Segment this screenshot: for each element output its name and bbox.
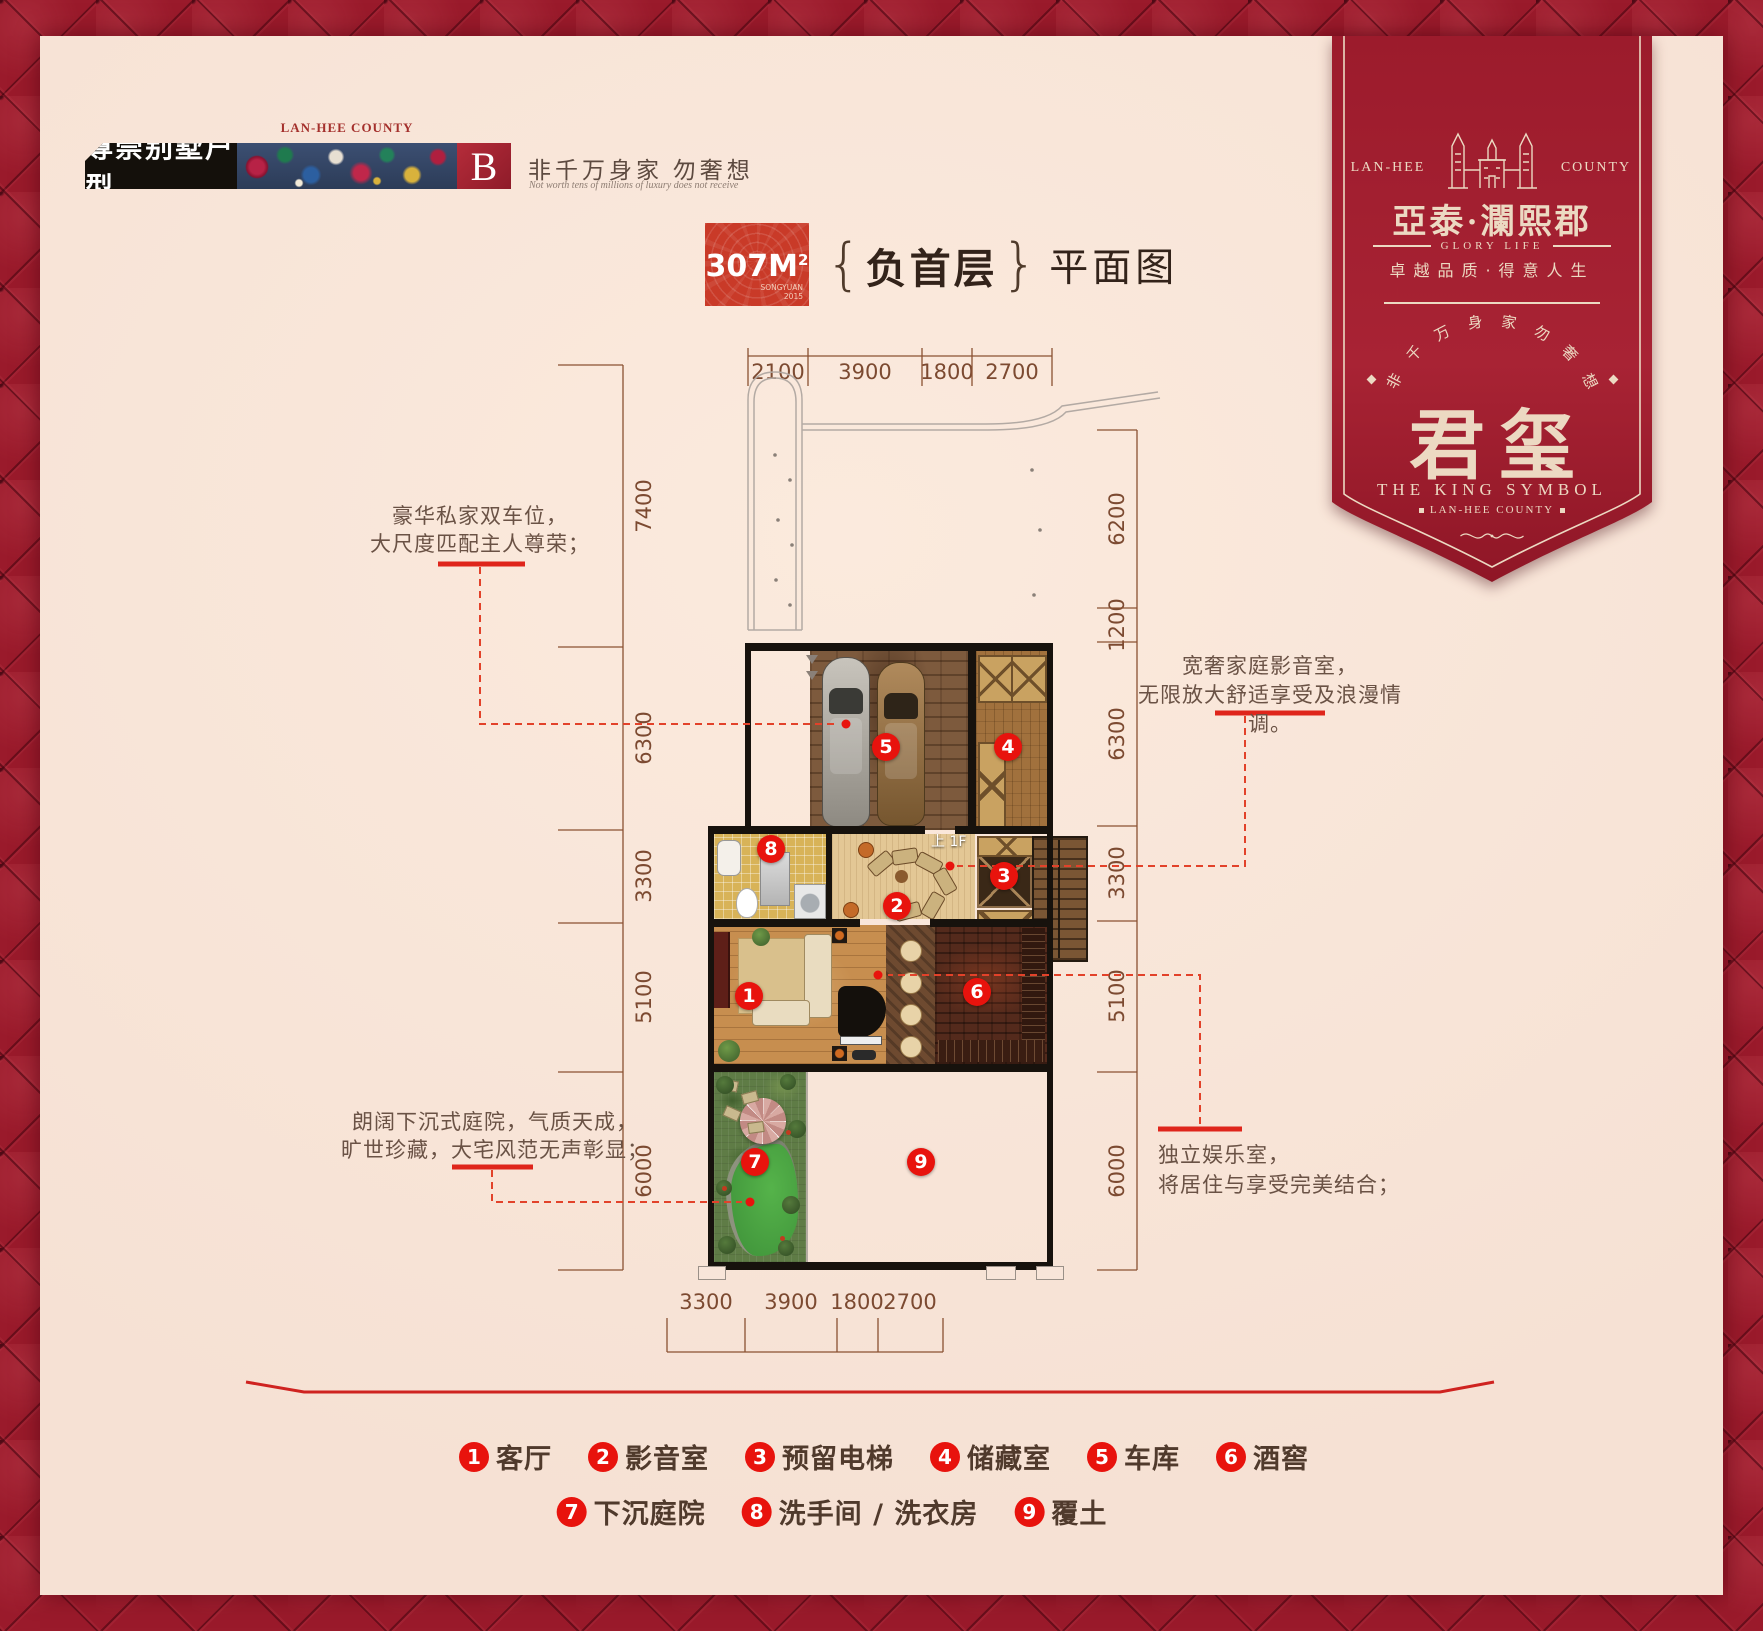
banner-county-sub-label: LAN-HEE COUNTY [1430,504,1554,516]
dim-bottom: 3300 [666,1290,746,1314]
area-badge: 307M2 SONGYUAN 2015 [705,223,809,306]
wall [708,919,860,927]
legend-item: 2 影音室 [588,1437,709,1476]
king-symbol-logotype: 君玺 [1332,384,1652,494]
plant [718,1040,740,1062]
callout-garage: 豪华私家双车位， 大尺度匹配主人尊荣； [360,502,600,558]
room-marker-garage: 5 [872,733,900,761]
legend-label: 储藏室 [967,1437,1051,1476]
king-symbol-en: THE KING SYMBOL [1332,480,1652,500]
callout-line: 将居住与享受完美结合； [1158,1170,1418,1200]
legend-number: 2 [588,1442,618,1472]
callout-media-room: 宽奢家庭影音室， 无限放大舒适享受及浪漫情调。 [1130,652,1410,739]
accent-table [832,928,847,943]
brand-slogan: 卓越品质·得意人生 [1332,257,1652,281]
page-title: { 负首层 } 平面图 [822,233,1178,297]
legend-item: 3 预留电梯 [745,1437,894,1476]
side-table [858,842,874,858]
brace-left: { [822,235,866,295]
glory-life-row: GLORY LIFE [1332,240,1652,252]
wall [930,919,1053,927]
wall [1047,643,1053,1270]
legend-item: 7 下沉庭院 [557,1492,706,1531]
car-roof [830,718,862,774]
callout-courtyard: 朗阔下沉式庭院，气质天成， 旷世珍藏，大宅风范无声彰显； [340,1108,650,1164]
area-value: 307M2 [705,249,809,284]
room-marker-elevator: 3 [990,862,1018,890]
wall [745,643,1053,651]
callout-line: 朗阔下沉式庭院，气质天成， [340,1108,650,1136]
wall [708,826,714,1270]
legend-item: 4 储藏室 [930,1437,1051,1476]
wine-rack [1022,928,1045,1040]
stair-direction-label: 上 1F [931,831,966,851]
legend-label: 下沉庭院 [594,1492,706,1531]
pennant-shape [1332,36,1652,582]
room-marker-media: 2 [883,892,911,920]
dim-right: 6300 [1106,699,1128,769]
sofa [752,1000,810,1026]
brace-right: } [998,235,1042,295]
room-marker-wine: 6 [963,978,991,1006]
ramp-arrow-icon [806,655,818,664]
glory-life-label: GLORY LIFE [1441,240,1544,252]
legend-row-2: 7 下沉庭院 8 洗手间 / 洗衣房 9 覆土 [557,1492,1108,1531]
callout-line: 豪华私家双车位， [360,502,600,530]
legend-item: 6 酒窖 [1216,1437,1309,1476]
legend-number: 9 [1014,1497,1044,1527]
dim-right: 5100 [1106,961,1128,1031]
title-suffix: 平面图 [1049,237,1178,293]
title-floor: 负首层 [866,235,998,295]
wine-rack [938,1040,1045,1062]
callout-line: 旷世珍藏，大宅风范无声彰显； [340,1136,650,1164]
footing [1036,1266,1064,1280]
bush [782,1196,800,1214]
legend-number: 6 [1216,1442,1246,1472]
legend-item: 9 覆土 [1014,1492,1107,1531]
stepping-circle [900,972,922,994]
banner-county-sub: LAN-HEE COUNTY [1332,504,1652,516]
stepping-stone [747,1121,764,1134]
legend-label: 覆土 [1051,1492,1107,1531]
tv-cabinet [714,932,730,1008]
legend-label: 客厅 [496,1437,552,1476]
legend-label: 洗手间 / 洗衣房 [779,1492,979,1531]
side-table [843,902,859,918]
footing [986,1266,1016,1280]
dim-top: 2100 [738,360,818,384]
car-windshield [884,693,918,719]
toilet [736,888,758,918]
type-letter-badge: B [457,143,511,189]
dim-right: 3300 [1106,838,1128,908]
dim-left: 5100 [633,962,655,1032]
brand-name: 亞泰·瀾熙郡 [1332,194,1652,243]
callout-line: 独立娱乐室， [1158,1140,1418,1170]
dim-right: 6000 [1106,1136,1128,1206]
bush [716,1076,734,1094]
storage-cabinet [1011,655,1047,703]
area-badge-subtext: SONGYUAN 2015 [749,283,803,301]
arc-char: 身 [1466,310,1484,333]
legend-item: 1 客厅 [459,1437,552,1476]
county-label: LAN-HEE COUNTY [237,120,457,136]
legend-number: 1 [459,1442,489,1472]
banner-divider [1384,302,1600,304]
wall [968,651,976,830]
banner-county-right: COUNTY [1548,160,1644,176]
room-marker-bathroom: 8 [757,835,785,863]
dim-right: 1200 [1106,590,1128,660]
room-marker-courtyard: 7 [741,1148,769,1176]
room-marker-storage: 4 [994,733,1022,761]
dim-bottom: 2700 [870,1290,950,1314]
dim-top: 2700 [972,360,1052,384]
poster-page: { "header": { "badge": "尊崇别墅户型", "county… [0,0,1763,1631]
callout-line: 无限放大舒适享受及浪漫情调。 [1130,681,1410,739]
flower [780,1236,785,1241]
room-marker-living: 1 [735,982,763,1010]
dim-left: 6300 [633,703,655,773]
plant [752,928,770,946]
legend-item: 5 车库 [1087,1437,1180,1476]
wall [955,826,1053,834]
bush [780,1074,796,1090]
wall [708,1064,1053,1072]
legend-label: 车库 [1124,1437,1180,1476]
stepping-circle [900,1036,922,1058]
washing-machine [794,884,826,919]
rule-left [1373,245,1431,247]
legend-label: 酒窖 [1253,1437,1309,1476]
legend-number: 4 [930,1442,960,1472]
callout-line: 宽奢家庭影音室， [1130,652,1410,681]
stepping-circle [900,940,922,962]
square-icon [1419,508,1424,513]
legend-item: 8 洗手间 / 洗衣房 [742,1492,979,1531]
accent-table [832,1046,847,1061]
stair-rail [1058,840,1060,958]
jewel-band-image [237,143,457,189]
dim-left: 7400 [633,471,655,541]
castle-icon [1442,126,1542,190]
round-table [895,870,908,883]
callout-entertainment: 独立娱乐室， 将居住与享受完美结合； [1158,1140,1418,1200]
legend-number: 7 [557,1497,587,1527]
dim-left: 3300 [633,841,655,911]
flower [786,1130,791,1135]
square-icon [1560,508,1565,513]
legend-number: 8 [742,1497,772,1527]
brand-tagline-en: Not worth tens of millions of luxury doe… [529,180,738,191]
footing [698,1266,726,1280]
stepping-circle [900,1004,922,1026]
legend-number: 5 [1087,1442,1117,1472]
piano-keys [840,1036,882,1045]
legend-label: 影音室 [625,1437,709,1476]
wall [826,834,832,925]
wall [708,826,925,834]
ramp-arrow-icon [806,671,818,680]
dim-top: 3900 [825,360,905,384]
dim-right: 6200 [1106,484,1128,554]
flourish-icon [1457,528,1527,544]
legend-row-1: 1 客厅 2 影音室 3 预留电梯 4 储藏室 5 车库 6 酒窖 [459,1437,1309,1476]
wall [745,643,751,830]
rule-right [1553,245,1611,247]
bush [788,1120,806,1138]
bush [778,1240,794,1256]
villa-type-badge: 尊崇别墅户型 [85,143,237,189]
sink [717,840,741,876]
storage-cabinet [978,655,1013,703]
flower [722,1186,727,1191]
car-windshield [829,688,863,714]
car-top-view [822,657,870,827]
piano-stool [852,1050,876,1060]
bush [718,1236,736,1254]
room-marker-soil: 9 [907,1148,935,1176]
brand-pennant-banner: LAN-HEE COUNTY 亞泰·瀾熙郡 GLORY LIFE 卓越品质·得意… [1332,36,1652,582]
legend-number: 3 [745,1442,775,1472]
banner-county-left: LAN-HEE [1340,160,1436,176]
cabinet [977,836,1036,857]
callout-line: 大尺度匹配主人尊荣； [360,530,600,558]
legend-label: 预留电梯 [782,1437,894,1476]
